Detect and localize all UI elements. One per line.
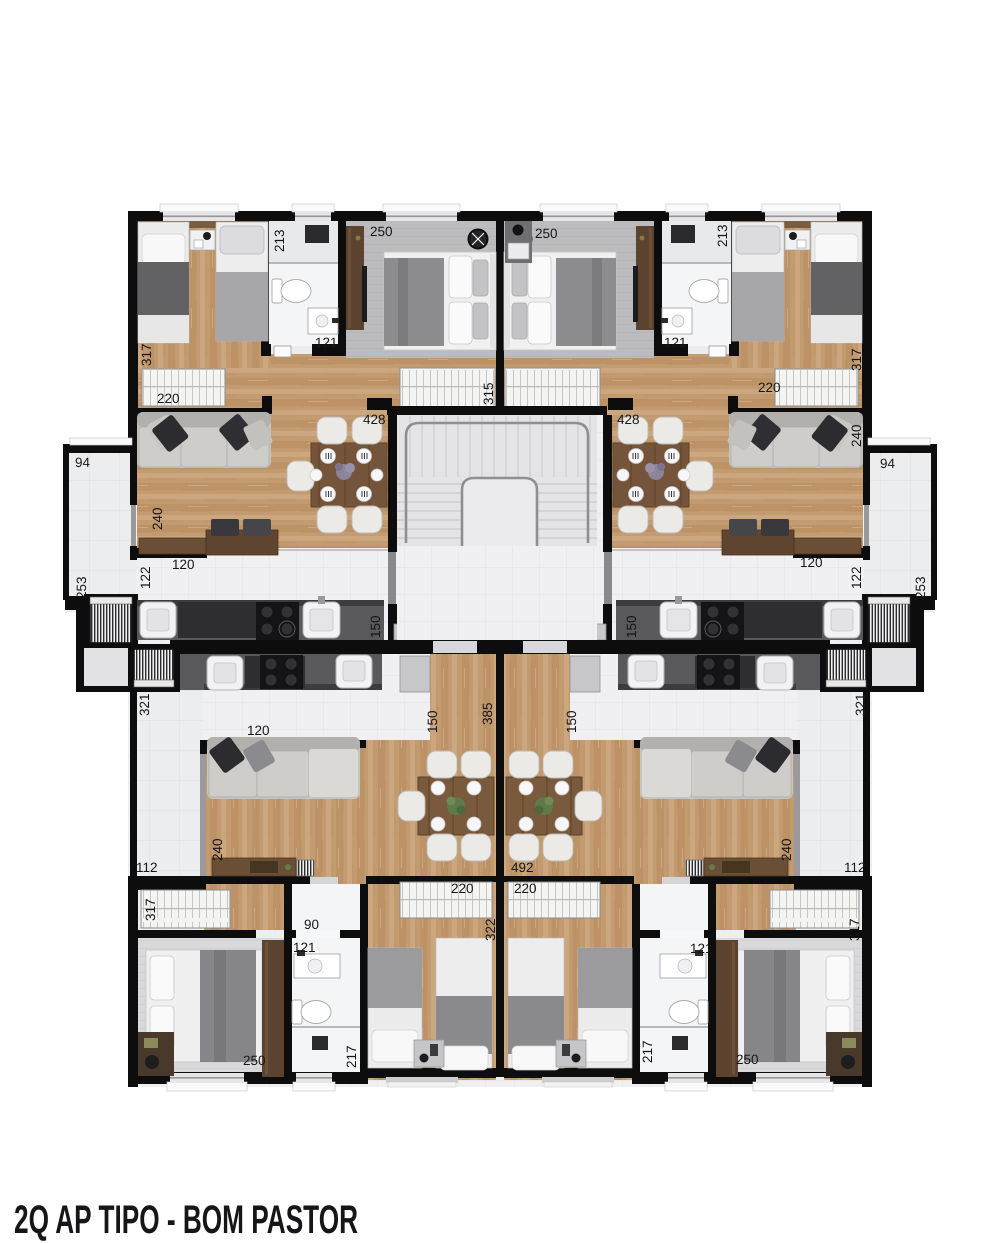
svg-text:315: 315 bbox=[481, 382, 496, 405]
svg-text:253: 253 bbox=[913, 576, 928, 599]
svg-text:150: 150 bbox=[624, 615, 639, 638]
svg-text:317: 317 bbox=[143, 898, 158, 921]
svg-text:217: 217 bbox=[640, 1040, 655, 1063]
svg-text:213: 213 bbox=[272, 229, 287, 252]
svg-text:121: 121 bbox=[315, 335, 338, 350]
svg-text:120: 120 bbox=[247, 723, 270, 738]
svg-text:428: 428 bbox=[363, 412, 386, 427]
svg-text:250: 250 bbox=[736, 1052, 759, 1067]
svg-text:240: 240 bbox=[779, 838, 794, 861]
svg-text:213: 213 bbox=[715, 224, 730, 247]
svg-text:112: 112 bbox=[844, 860, 866, 875]
svg-text:317: 317 bbox=[139, 343, 154, 366]
svg-text:112: 112 bbox=[136, 860, 158, 875]
svg-text:317: 317 bbox=[849, 348, 864, 371]
svg-text:385: 385 bbox=[480, 702, 495, 725]
svg-text:90: 90 bbox=[304, 917, 319, 932]
svg-text:428: 428 bbox=[617, 412, 640, 427]
svg-text:250: 250 bbox=[535, 226, 558, 241]
svg-text:94: 94 bbox=[880, 456, 896, 471]
svg-text:122: 122 bbox=[138, 566, 153, 589]
svg-text:321: 321 bbox=[853, 693, 868, 716]
svg-text:121: 121 bbox=[293, 940, 316, 955]
svg-text:240: 240 bbox=[210, 838, 225, 861]
svg-text:317: 317 bbox=[847, 918, 862, 941]
svg-text:217: 217 bbox=[344, 1045, 359, 1068]
svg-text:121: 121 bbox=[664, 335, 687, 350]
svg-text:220: 220 bbox=[514, 881, 537, 896]
svg-text:2Q AP TIPO - BOM PASTOR: 2Q AP TIPO - BOM PASTOR bbox=[14, 1198, 358, 1242]
svg-text:150: 150 bbox=[425, 710, 440, 733]
svg-text:220: 220 bbox=[758, 380, 781, 395]
svg-text:250: 250 bbox=[370, 224, 393, 239]
svg-text:322: 322 bbox=[483, 918, 498, 941]
svg-text:240: 240 bbox=[150, 507, 165, 530]
svg-text:120: 120 bbox=[800, 555, 823, 570]
svg-text:220: 220 bbox=[157, 391, 180, 406]
svg-text:94: 94 bbox=[75, 455, 91, 470]
svg-text:240: 240 bbox=[849, 424, 864, 447]
svg-text:492: 492 bbox=[511, 860, 534, 875]
svg-text:121: 121 bbox=[690, 941, 713, 956]
svg-text:150: 150 bbox=[564, 710, 579, 733]
svg-text:321: 321 bbox=[137, 693, 152, 716]
svg-text:220: 220 bbox=[451, 881, 474, 896]
svg-text:120: 120 bbox=[172, 557, 195, 572]
svg-text:122: 122 bbox=[849, 566, 864, 589]
svg-text:253: 253 bbox=[74, 576, 89, 599]
svg-text:250: 250 bbox=[243, 1053, 266, 1068]
svg-text:150: 150 bbox=[368, 615, 383, 638]
